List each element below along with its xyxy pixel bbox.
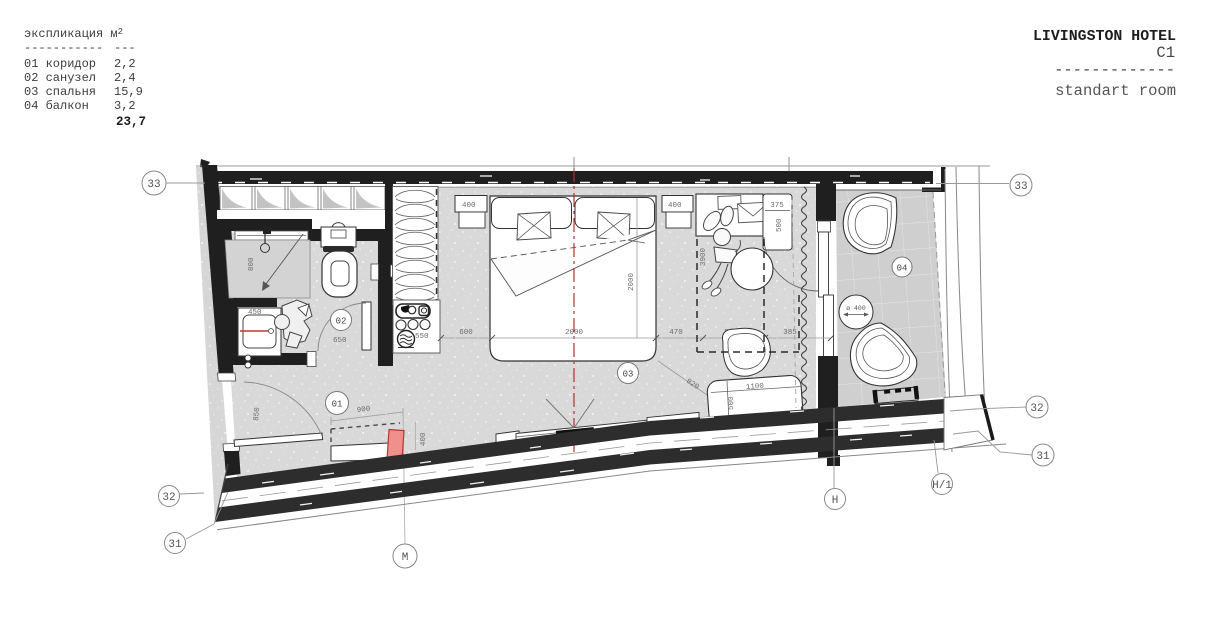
svg-text:400: 400 — [462, 202, 476, 210]
svg-text:1100: 1100 — [746, 383, 765, 392]
svg-text:3,2: 3,2 — [114, 99, 136, 113]
svg-text:850: 850 — [253, 407, 262, 422]
svg-text:3900: 3900 — [700, 247, 708, 266]
svg-text:01: 01 — [332, 400, 343, 410]
svg-text:2000: 2000 — [565, 329, 584, 337]
svg-text:31: 31 — [168, 539, 182, 551]
svg-text:-------------: ------------- — [1054, 61, 1175, 79]
svg-text:31: 31 — [1036, 451, 1050, 463]
svg-text:800: 800 — [248, 257, 256, 271]
svg-text:375: 375 — [770, 202, 784, 210]
svg-text:экспликация м2: экспликация м2 — [24, 27, 123, 41]
svg-text:2000: 2000 — [628, 272, 636, 291]
svg-text:650: 650 — [333, 337, 347, 345]
svg-text:03 спальня: 03 спальня — [24, 85, 96, 99]
svg-text:33: 33 — [1014, 181, 1027, 193]
svg-text:385: 385 — [783, 329, 797, 337]
svg-text:04 балкон: 04 балкон — [24, 99, 89, 113]
svg-text:33: 33 — [147, 179, 160, 191]
svg-text:ø 400: ø 400 — [846, 305, 866, 312]
svg-text:450: 450 — [248, 309, 262, 317]
svg-text:LIVINGSTON HOTEL: LIVINGSTON HOTEL — [1033, 28, 1176, 45]
svg-text:900: 900 — [356, 406, 371, 415]
svg-text:standart room: standart room — [1055, 82, 1176, 100]
svg-text:470: 470 — [669, 329, 683, 337]
svg-text:2,2: 2,2 — [114, 57, 136, 71]
svg-text:15,9: 15,9 — [114, 85, 143, 99]
svg-text:-----------: ----------- — [24, 41, 103, 55]
svg-text:600: 600 — [459, 329, 473, 337]
svg-text:02: 02 — [336, 317, 347, 327]
svg-text:500: 500 — [728, 396, 736, 410]
svg-text:550: 550 — [415, 333, 429, 341]
svg-text:500: 500 — [776, 218, 784, 232]
svg-text:02 санузел: 02 санузел — [24, 71, 96, 85]
svg-text:H: H — [832, 495, 839, 507]
svg-text:400: 400 — [668, 202, 682, 210]
svg-text:---: --- — [114, 41, 136, 55]
svg-text:04: 04 — [897, 264, 908, 274]
svg-text:400: 400 — [420, 432, 428, 446]
svg-text:H/1: H/1 — [932, 480, 952, 492]
svg-text:C1: C1 — [1156, 44, 1175, 62]
svg-text:32: 32 — [1030, 403, 1043, 415]
svg-text:01 коридор: 01 коридор — [24, 57, 96, 71]
svg-text:M: M — [402, 552, 409, 564]
svg-text:03: 03 — [623, 370, 634, 380]
svg-text:2,4: 2,4 — [114, 71, 136, 85]
svg-text:23,7: 23,7 — [116, 115, 146, 129]
svg-text:32: 32 — [162, 492, 175, 504]
